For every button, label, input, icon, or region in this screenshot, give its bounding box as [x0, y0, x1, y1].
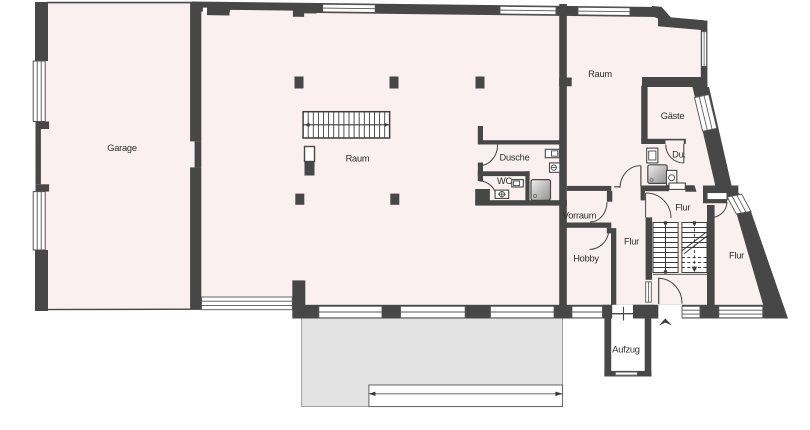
- svg-text:Dusche: Dusche: [499, 153, 529, 163]
- svg-text:Du.: Du.: [672, 150, 686, 160]
- svg-text:Flur: Flur: [675, 203, 690, 213]
- svg-text:Hobby: Hobby: [573, 254, 599, 264]
- svg-text:Flur: Flur: [729, 251, 744, 261]
- svg-text:Raum: Raum: [588, 69, 612, 79]
- svg-text:Garage: Garage: [107, 143, 137, 153]
- svg-text:WC: WC: [497, 176, 513, 186]
- svg-text:Vorraum: Vorraum: [563, 210, 597, 220]
- svg-text:Aufzug: Aufzug: [612, 345, 640, 355]
- svg-text:Raum: Raum: [346, 154, 370, 164]
- svg-text:Gäste: Gäste: [661, 111, 685, 121]
- svg-text:Flur: Flur: [624, 237, 639, 247]
